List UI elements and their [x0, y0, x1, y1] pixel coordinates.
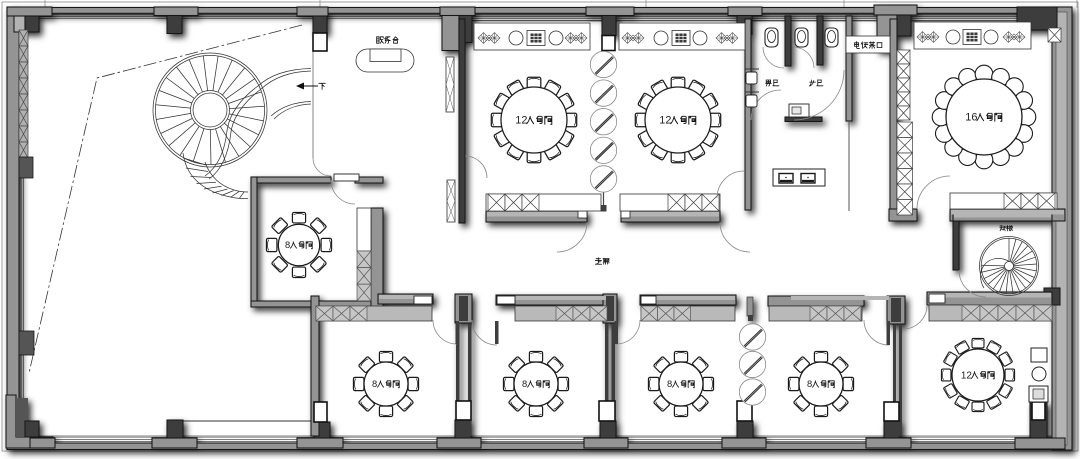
- svg-text:8: 8: [285, 239, 290, 250]
- svg-text:12: 12: [515, 115, 527, 127]
- svg-text:12: 12: [659, 115, 671, 127]
- svg-text:12: 12: [961, 370, 972, 381]
- svg-text:16: 16: [965, 112, 977, 124]
- svg-text:8: 8: [522, 378, 527, 389]
- svg-text:8: 8: [667, 378, 672, 389]
- svg-text:8: 8: [807, 378, 812, 389]
- svg-text:8: 8: [372, 378, 377, 389]
